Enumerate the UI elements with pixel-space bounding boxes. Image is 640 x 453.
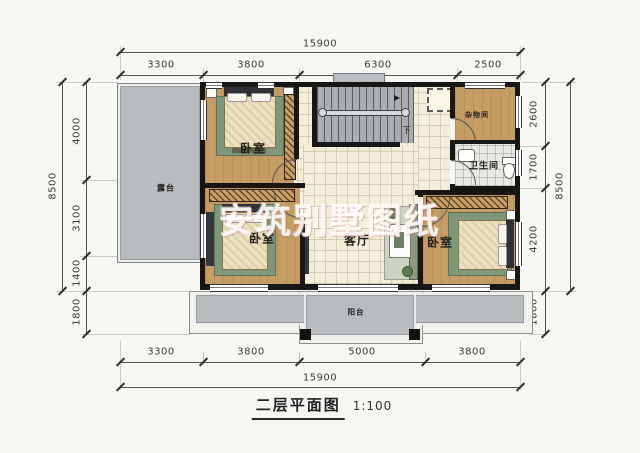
dim-top-2: 3800 — [237, 60, 264, 71]
window — [465, 82, 505, 89]
pillow — [498, 246, 507, 266]
wall — [312, 82, 317, 147]
stair-handrail-end — [318, 108, 327, 117]
stair-handrail — [322, 110, 406, 116]
floor-plan: 15900 3300 3800 6300 2500 3300 3800 5000… — [0, 0, 640, 453]
pillow — [251, 93, 271, 102]
dim-top-total: 15900 — [303, 39, 337, 50]
dim-bottom-2: 3800 — [237, 347, 264, 358]
window — [206, 82, 222, 89]
wall — [450, 142, 455, 160]
terrace-label: 露台 — [157, 183, 175, 194]
stair-handrail-end — [401, 108, 410, 117]
dim-right-2: 1700 — [529, 153, 540, 180]
dim-right-total: 8500 — [555, 172, 566, 199]
dim-line — [120, 387, 520, 388]
balcony-column — [409, 329, 420, 340]
plant — [402, 266, 413, 277]
stairs-down-label: 下 — [402, 124, 412, 137]
watermark: 安筑别墅图纸 — [219, 194, 441, 245]
window — [432, 284, 490, 292]
dim-line — [86, 82, 87, 334]
dim-line — [570, 82, 571, 291]
wall — [294, 82, 299, 159]
dim-line — [62, 82, 63, 291]
dim-left-1: 4000 — [72, 117, 83, 144]
guide-line — [520, 340, 521, 390]
wall — [200, 183, 305, 188]
bed-headboard — [506, 220, 514, 268]
balcony-door — [318, 284, 398, 292]
window — [515, 222, 522, 266]
dim-tick — [541, 329, 550, 338]
pillow — [227, 93, 247, 102]
dim-right-3: 4200 — [529, 225, 540, 252]
bathroom-label: 卫生间 — [469, 159, 499, 172]
bedroom-tl-label: 卧室 — [240, 140, 266, 157]
wall — [450, 140, 520, 144]
terrace — [117, 83, 203, 263]
dim-left-3: 1400 — [72, 259, 83, 286]
dim-left-2: 3100 — [72, 204, 83, 231]
plan-title: 二层平面图 — [252, 394, 345, 420]
dim-bottom-1: 3300 — [147, 347, 174, 358]
pillow — [498, 224, 507, 244]
dim-tick — [516, 382, 525, 391]
dresser — [206, 212, 214, 266]
plan-title-block: 二层平面图 1:100 — [252, 394, 393, 420]
dim-bottom-total: 15900 — [303, 373, 337, 384]
dim-right-1: 2600 — [529, 100, 540, 127]
window — [210, 284, 268, 292]
storage-label: 杂物间 — [465, 110, 489, 120]
balcony-label: 阳台 — [348, 307, 365, 318]
window — [515, 96, 522, 128]
window — [258, 82, 274, 89]
window — [515, 150, 522, 176]
dim-line — [120, 52, 520, 53]
terrace-door — [200, 100, 207, 140]
dim-left-total: 8500 — [48, 172, 59, 199]
dim-line — [120, 362, 520, 363]
dim-left-4: 1800 — [72, 298, 83, 325]
guide-line — [80, 334, 190, 335]
dim-bottom-3: 5000 — [348, 347, 375, 358]
plan-scale: 1:100 — [353, 399, 393, 413]
wall — [450, 82, 455, 118]
window — [200, 214, 207, 258]
dim-top-1: 3300 — [147, 60, 174, 71]
stair-direction-arrow — [394, 95, 400, 101]
balcony-column — [300, 329, 311, 340]
dim-top-4: 2500 — [474, 60, 501, 71]
dim-line — [120, 75, 520, 76]
dim-line — [545, 82, 546, 334]
dim-top-3: 6300 — [364, 60, 391, 71]
wall — [312, 142, 400, 147]
guide-line — [56, 291, 190, 292]
guide-line — [120, 340, 121, 390]
dim-bottom-4: 3800 — [458, 347, 485, 358]
